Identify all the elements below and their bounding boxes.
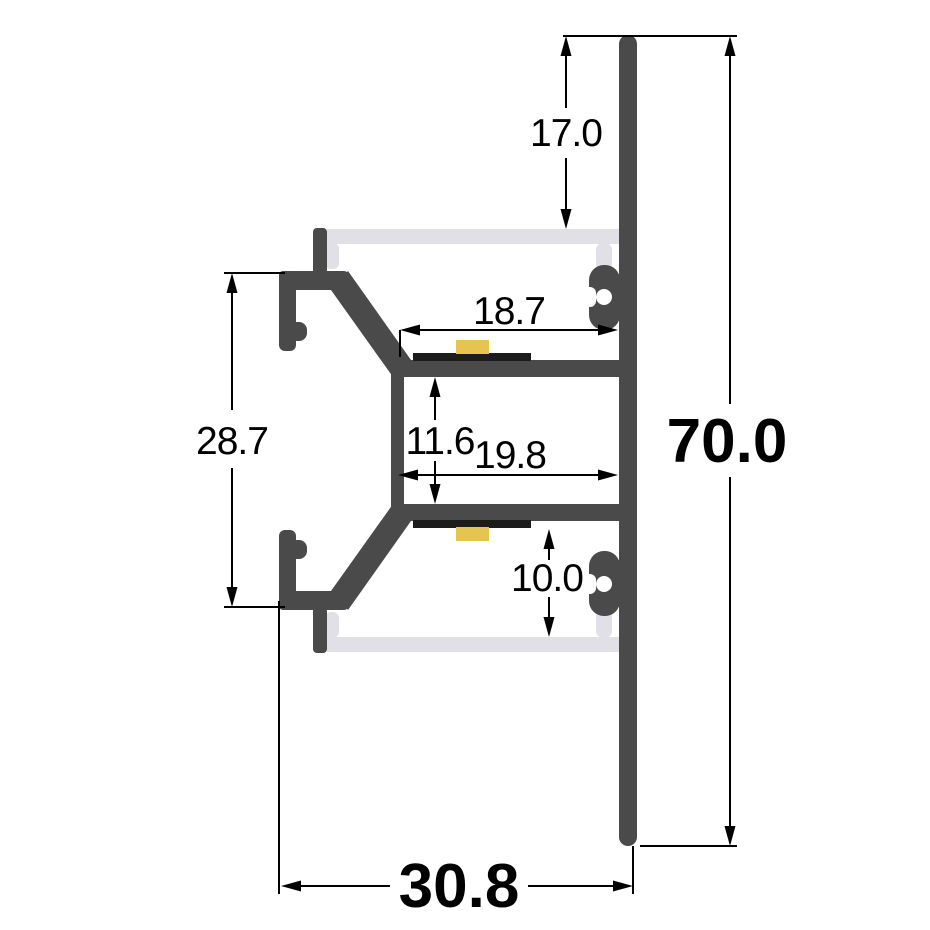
box-left-wall (391, 360, 404, 441)
dim-17-arrow-down (561, 209, 572, 229)
screw-boss-hole (596, 289, 612, 305)
dim-70-arrow-up (725, 36, 736, 56)
dim-11-6-label: 11.6 (405, 420, 474, 463)
dim-19-8-label: 19.8 (474, 434, 546, 477)
dim-28-7: 28.7 (196, 273, 285, 607)
dim-11-6-arrow-down (430, 484, 441, 504)
diffuser-cover (327, 229, 619, 244)
dim-10: 10.0 (511, 529, 583, 637)
wall-plate (619, 35, 637, 846)
profile-upper-half (279, 228, 620, 441)
dim-70: 70.0 (640, 36, 787, 846)
dim-19-8-arrow-right (598, 470, 618, 481)
screw-boss-slot (580, 287, 596, 307)
dim-28-7-arrow-down (227, 587, 238, 607)
drawing-canvas: 17.0 70.0 28.7 18.7 11.6 19.8 (0, 0, 930, 930)
dim-11-6-arrow-up (430, 377, 441, 397)
dim-10-arrow-down (544, 617, 555, 637)
channel-outer-wall (313, 228, 327, 274)
dim-18-7-arrow-left (400, 325, 420, 336)
profile-drawing: 17.0 70.0 28.7 18.7 11.6 19.8 (0, 0, 930, 930)
diffuser-clip-left (325, 243, 339, 269)
led-strip-pcb (413, 353, 531, 361)
dim-10-label: 10.0 (511, 557, 583, 600)
dim-28-7-label: 28.7 (196, 420, 268, 463)
led-chip (456, 340, 489, 354)
dim-30-8-arrow-left (281, 881, 301, 892)
dim-28-7-arrow-up (227, 273, 238, 293)
dim-70-label: 70.0 (667, 407, 788, 476)
box-plate (391, 360, 620, 377)
profile-lower-half (279, 440, 620, 653)
flange-hook-lip (286, 322, 307, 341)
dim-17-label: 17.0 (530, 112, 602, 155)
dim-30-8-arrow-right (613, 881, 633, 892)
dim-30-8-label: 30.8 (399, 852, 520, 921)
dim-10-arrow-up (544, 529, 555, 549)
dim-70-arrow-down (725, 826, 736, 846)
dim-18-7-label: 18.7 (473, 290, 545, 333)
dim-17-arrow-up (561, 36, 572, 56)
dim-11-6: 11.6 (405, 377, 474, 504)
